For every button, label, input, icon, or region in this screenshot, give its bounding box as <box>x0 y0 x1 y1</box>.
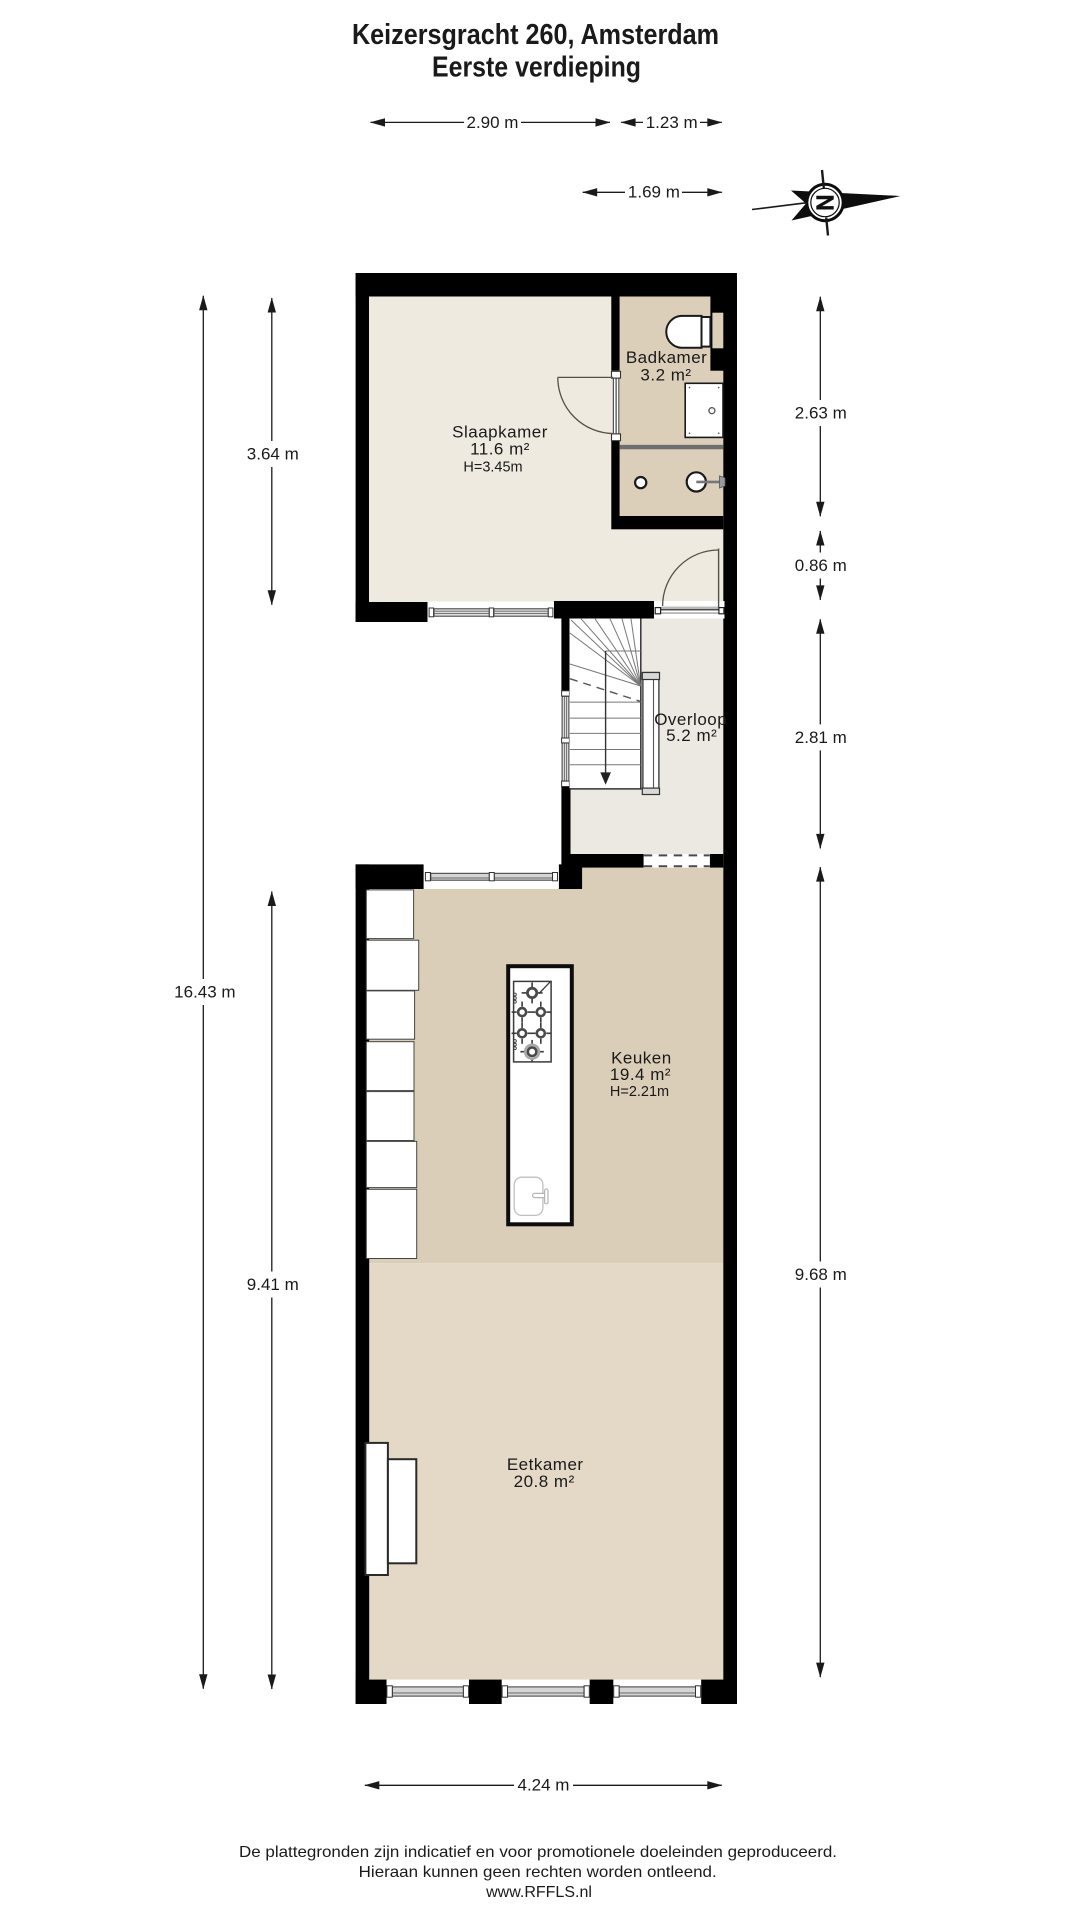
svg-text:20.8 m²: 20.8 m² <box>514 1472 575 1491</box>
svg-text:3.2 m²: 3.2 m² <box>640 366 691 385</box>
svg-text:9.41 m: 9.41 m <box>247 1275 299 1294</box>
svg-text:www.RFFLS.nl: www.RFFLS.nl <box>485 1884 592 1901</box>
svg-text:9.68 m: 9.68 m <box>795 1265 847 1284</box>
svg-text:Eerste verdieping: Eerste verdieping <box>432 52 641 84</box>
svg-text:H=3.45m: H=3.45m <box>463 460 522 476</box>
svg-text:11.6 m²: 11.6 m² <box>470 439 530 458</box>
svg-text:Keizersgracht 260, Amsterdam: Keizersgracht 260, Amsterdam <box>352 19 719 51</box>
svg-text:2.63 m: 2.63 m <box>795 404 847 423</box>
svg-text:0.86 m: 0.86 m <box>795 556 847 575</box>
svg-text:1.69 m: 1.69 m <box>628 183 680 202</box>
svg-text:3.64 m: 3.64 m <box>247 445 299 464</box>
svg-text:16.43 m: 16.43 m <box>174 983 235 1002</box>
svg-text:2.81 m: 2.81 m <box>795 728 847 747</box>
svg-text:5.2 m²: 5.2 m² <box>666 726 717 745</box>
svg-text:4.24 m: 4.24 m <box>518 1776 570 1795</box>
svg-text:19.4 m²: 19.4 m² <box>610 1065 671 1084</box>
svg-text:H=2.21m: H=2.21m <box>610 1084 669 1100</box>
svg-text:Hieraan kunnen geen rechten wo: Hieraan kunnen geen rechten worden ontle… <box>359 1864 717 1881</box>
svg-text:1.23 m: 1.23 m <box>646 113 698 132</box>
svg-text:De plattegronden zijn indicati: De plattegronden zijn indicatief en voor… <box>239 1844 837 1861</box>
svg-text:2.90 m: 2.90 m <box>467 113 519 132</box>
svg-text:Badkamer: Badkamer <box>626 348 707 367</box>
